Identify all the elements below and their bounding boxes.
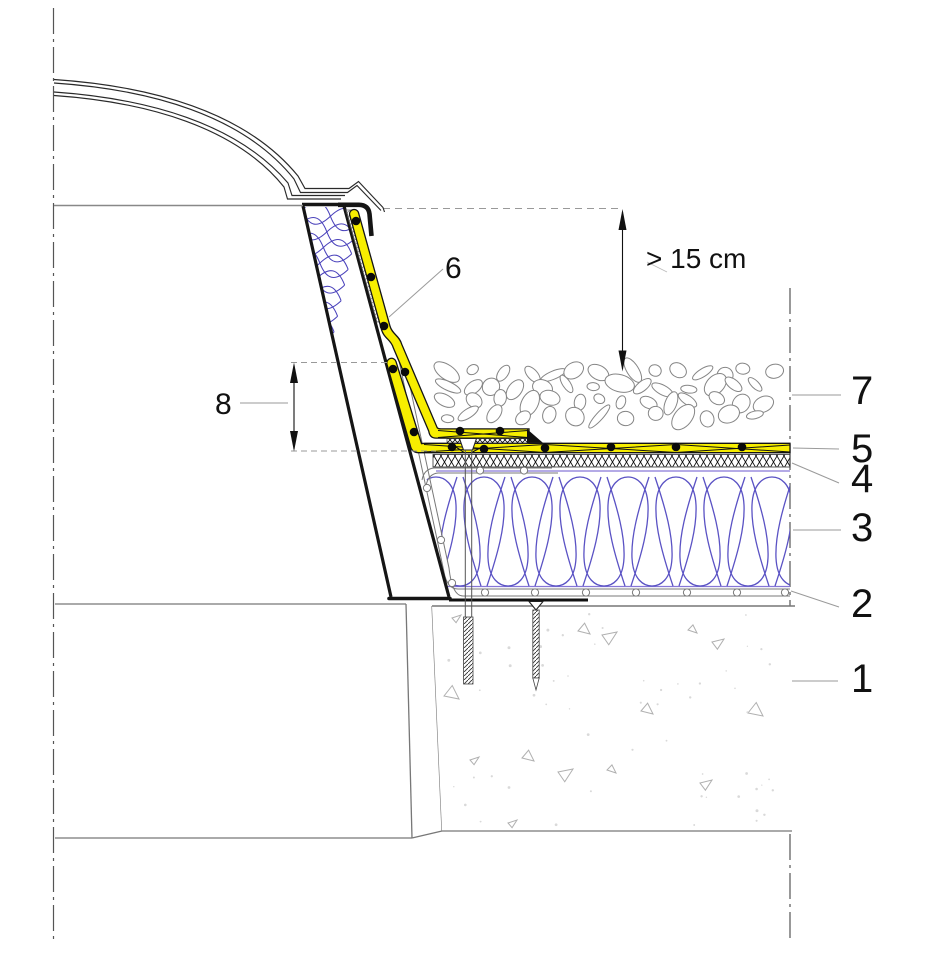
concrete-speckle xyxy=(491,775,493,777)
concrete-speckle xyxy=(763,814,765,816)
curb-batt-line xyxy=(250,417,312,452)
concrete-speckle xyxy=(657,703,659,705)
curb-batt-line xyxy=(272,324,334,359)
callout-2: 2 xyxy=(851,582,873,626)
membrane-fixing-dot xyxy=(380,322,389,331)
concrete-speckle xyxy=(746,711,748,713)
insulation-loop xyxy=(560,477,600,586)
concrete-speckle xyxy=(447,659,450,662)
curb-batt-line xyxy=(268,339,330,374)
leader-callout-5 xyxy=(793,448,839,449)
curb-batt-line xyxy=(236,480,298,515)
concrete-speckle xyxy=(555,823,558,826)
concrete-speckle xyxy=(699,682,701,684)
rooflight-dome xyxy=(54,80,385,213)
concrete-deck xyxy=(432,606,795,831)
concrete-speckle xyxy=(725,670,727,672)
curb-batt-line xyxy=(243,449,305,484)
leader-callout-2 xyxy=(791,591,839,607)
skylight-curb xyxy=(215,199,450,608)
membrane-fixing-dot xyxy=(448,443,457,452)
concrete-speckle xyxy=(464,804,467,807)
membrane-fixing-dot xyxy=(410,428,419,437)
gravel-stone xyxy=(456,403,481,423)
insulation-loop xyxy=(704,477,744,586)
callout-4: 4 xyxy=(851,457,873,501)
insulation-loop xyxy=(728,477,768,586)
gravel-stone xyxy=(680,384,697,393)
vapor-barrier-circle xyxy=(531,589,538,596)
insulation-loop xyxy=(680,477,720,586)
concrete-speckle xyxy=(590,790,592,792)
curb-batt-line xyxy=(233,495,295,530)
gravel-stone xyxy=(465,363,480,377)
curb-batt-line xyxy=(257,386,319,421)
gravel-stone xyxy=(592,392,606,405)
concrete-speckle xyxy=(768,779,770,781)
curb-batt-line xyxy=(219,558,281,593)
gravel-stone xyxy=(432,390,457,410)
membrane-fixing-dot xyxy=(496,427,505,436)
insulation-loop xyxy=(536,477,576,586)
concrete-speckle xyxy=(760,648,762,650)
concrete-speckle xyxy=(660,689,662,691)
concrete-speckle xyxy=(508,786,511,789)
vapor-barrier-circle xyxy=(448,579,455,586)
gravel-ballast xyxy=(431,355,785,434)
insulation-loop xyxy=(608,477,648,586)
callout-3: 3 xyxy=(851,506,873,550)
concrete-speckle xyxy=(453,786,454,787)
concrete-speckle xyxy=(693,824,695,826)
curb-batt-line xyxy=(240,464,302,499)
concrete-speckle xyxy=(706,797,707,798)
curb-batt-line xyxy=(272,324,334,359)
concrete-speckle xyxy=(588,613,590,615)
vapor-barrier-circle xyxy=(481,589,488,596)
gravel-stone xyxy=(764,362,785,379)
vapor-barrier-circle xyxy=(437,536,444,543)
concrete-speckle xyxy=(702,773,704,775)
curb-batt-line xyxy=(229,511,291,546)
concrete-speckle xyxy=(569,708,570,709)
concrete-speckle xyxy=(761,784,762,785)
dome-inner-skin xyxy=(54,92,345,196)
concrete-speckle xyxy=(562,634,564,636)
concrete-speckle xyxy=(747,646,748,647)
concrete-speckle xyxy=(533,694,536,697)
insulation-loop xyxy=(584,477,624,586)
concrete-speckle xyxy=(631,749,633,751)
membrane-fixing-dot xyxy=(607,443,616,452)
concrete-speckle xyxy=(745,614,747,616)
membrane-fixing-dot xyxy=(389,365,398,374)
curb-batt-line xyxy=(254,402,316,437)
curb-batt-line xyxy=(250,417,312,452)
leader-callout-6 xyxy=(389,269,443,317)
concrete-speckle xyxy=(479,689,481,691)
gravel-stone xyxy=(617,411,635,427)
concrete-speckle xyxy=(587,733,590,736)
vapor-barrier-circle xyxy=(582,589,589,596)
concrete-speckle xyxy=(508,646,511,649)
concrete-speckle xyxy=(479,652,482,655)
insulation-loop xyxy=(512,477,552,586)
curb-batt-line xyxy=(233,495,295,530)
gravel-stone xyxy=(614,394,627,410)
concrete-speckle xyxy=(643,680,645,682)
insulation-loop xyxy=(632,477,672,586)
vapor-barrier-circle xyxy=(520,467,527,474)
vapor-barrier-circle xyxy=(781,589,788,596)
membrane-fixing-dot xyxy=(367,273,376,282)
callout-1: 1 xyxy=(851,657,873,701)
concrete-speckle xyxy=(769,663,771,665)
callout-6: 6 xyxy=(445,252,462,285)
concrete-speckle xyxy=(734,688,736,690)
layer-callouts xyxy=(791,395,841,681)
membrane-fixing-dot xyxy=(352,217,361,226)
dimension-arrow-up xyxy=(619,209,627,230)
concrete-speckle xyxy=(602,627,604,629)
concrete-speckle xyxy=(640,702,642,704)
membrane-fixing-dot xyxy=(541,444,550,453)
concrete-speckle xyxy=(473,776,475,778)
gravel-stone xyxy=(586,403,612,431)
membrane-fixing-dot xyxy=(672,443,681,452)
curb-batt-line xyxy=(222,542,284,577)
concrete-speckle xyxy=(567,675,569,677)
insulation-loop xyxy=(440,477,480,586)
curb-batt-line xyxy=(257,386,319,421)
curb-batt-line xyxy=(236,480,298,515)
gravel-stone xyxy=(647,363,663,378)
curb-batt-line xyxy=(219,558,281,593)
concrete-speckle xyxy=(666,740,668,742)
insulation-layer xyxy=(416,471,816,587)
vapor-barrier-circle xyxy=(733,589,740,596)
insulation-loop xyxy=(752,477,792,586)
dimension-text-gravel: > 15 cm xyxy=(646,243,746,274)
gravel-stone xyxy=(735,362,750,374)
vapor-barrier-circle xyxy=(632,589,639,596)
curb-batt-line xyxy=(247,433,309,468)
concrete-speckle xyxy=(677,683,679,685)
gravel-stone xyxy=(698,409,715,428)
concrete-speckle xyxy=(541,664,544,667)
curb-batt-line xyxy=(215,574,277,609)
curb-batt-line xyxy=(247,433,309,468)
insulation-loop xyxy=(488,477,528,586)
membrane-fixing-dot xyxy=(456,427,465,436)
concrete-speckle xyxy=(737,795,740,798)
vapor-barrier-circle xyxy=(683,589,690,596)
concrete-speckle xyxy=(546,629,549,632)
concrete-speckle xyxy=(480,821,482,823)
gravel-stone xyxy=(541,405,558,425)
membrane-fixing-dot xyxy=(738,443,747,452)
detail-section-svg: > 15 cm 8 6 7 5 4 3 2 1 xyxy=(0,0,927,954)
gravel-stone xyxy=(746,375,764,393)
curb-batt-line xyxy=(226,527,288,562)
gravel-stone xyxy=(667,360,689,381)
concrete-speckle xyxy=(755,788,758,791)
concrete-speckle xyxy=(756,809,759,812)
curb-batt-line xyxy=(254,402,316,437)
overlap-separator xyxy=(447,439,528,444)
gravel-stone xyxy=(587,382,600,391)
wall-below-roof xyxy=(55,604,442,838)
concrete-speckle xyxy=(745,772,748,775)
membrane-fixing-dot xyxy=(401,368,410,377)
concrete-speckle xyxy=(700,795,702,797)
gravel-stone xyxy=(441,414,454,423)
concrete-speckle xyxy=(553,680,555,682)
callout-7: 7 xyxy=(851,369,873,413)
curb-batt-line xyxy=(222,542,284,577)
concrete-speckle xyxy=(772,789,774,791)
vapor-barrier-circle xyxy=(423,484,430,491)
concrete-speckle xyxy=(509,664,512,667)
insulation-loop xyxy=(776,477,816,586)
concrete-speckle xyxy=(594,643,596,645)
curb-batt-line xyxy=(226,527,288,562)
membrane-fixing-dot xyxy=(480,445,489,454)
curb-batt-line xyxy=(268,339,330,374)
leader-callout-4 xyxy=(792,463,839,483)
curb-batt-line xyxy=(240,464,302,499)
concrete-speckle xyxy=(545,704,547,706)
insulation-loop xyxy=(464,477,504,586)
dimension-gravel-height: > 15 cm xyxy=(619,209,747,372)
construction-detail-drawing: > 15 cm 8 6 7 5 4 3 2 1 xyxy=(0,0,927,954)
vapor-barrier-circle xyxy=(476,467,483,474)
concrete-speckle xyxy=(756,820,758,822)
insulation-loop xyxy=(656,477,696,586)
separating-layer xyxy=(433,455,790,468)
concrete-speckle xyxy=(689,696,691,698)
curb-batt-line xyxy=(243,449,305,484)
gravel-stone xyxy=(746,409,764,420)
callout-8: 8 xyxy=(215,388,232,421)
curb-batt-line xyxy=(215,574,277,609)
curb-batt-line xyxy=(229,511,291,546)
